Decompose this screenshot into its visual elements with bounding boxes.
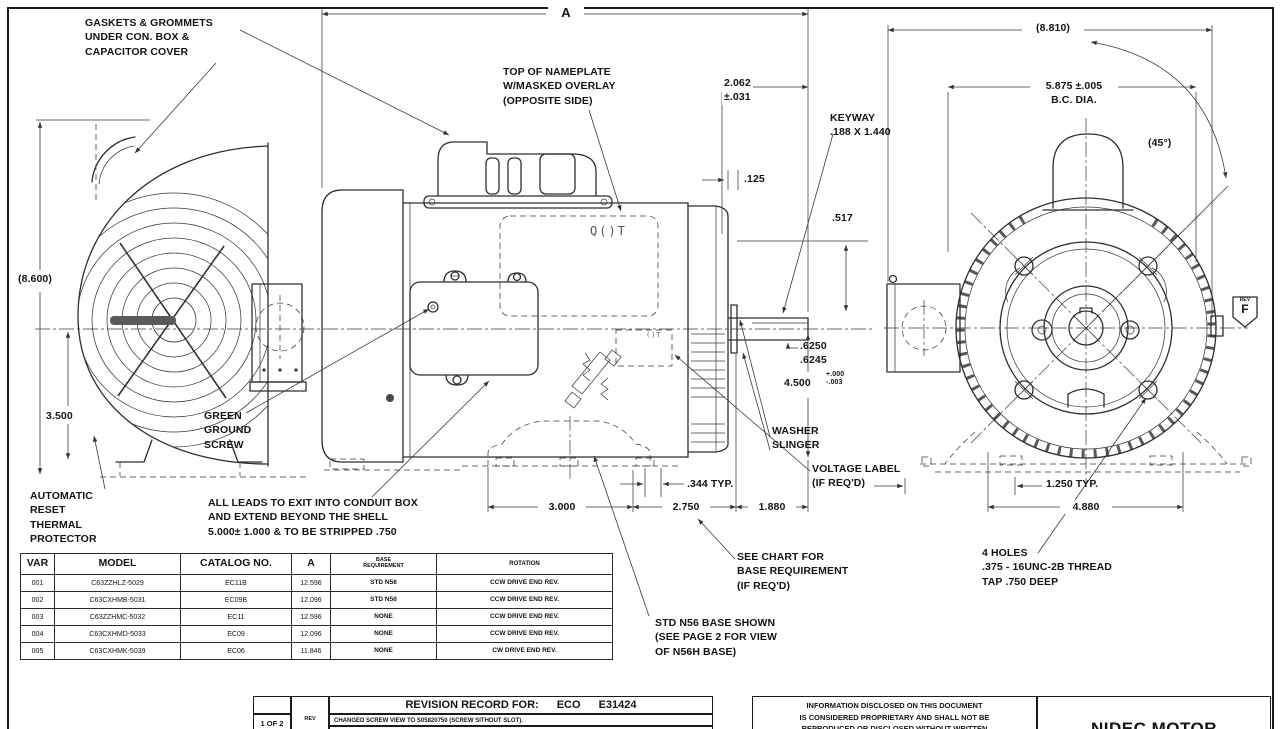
- cell: NONE: [331, 609, 437, 626]
- left-view-fan-end: [47, 124, 310, 477]
- dim-bolt-circle: 5.875 ±.005 B.C. DIA.: [1030, 79, 1118, 108]
- col-a: A: [292, 554, 331, 575]
- n56-base-outline: [324, 416, 680, 482]
- engineering-drawing-sheet: GASKETS & GROMMETS UNDER CON. BOX & CAPA…: [0, 0, 1280, 729]
- see-chart-note: SEE CHART FOR BASE REQUIREMENT (IF REQ'D…: [737, 550, 848, 593]
- dim-45deg: (45°): [1146, 136, 1173, 150]
- dim-517: .517: [832, 211, 853, 225]
- rev-flag-letter: F: [1233, 303, 1257, 315]
- thermal-protector-note: AUTOMATIC RESET THERMAL PROTECTOR: [30, 489, 97, 546]
- dim-4500: 4.500: [782, 376, 813, 390]
- dim-1880: 1.880: [748, 500, 796, 514]
- front-view-shaft-end: [887, 134, 1251, 472]
- col-model: MODEL: [55, 554, 181, 575]
- cert-mark-large: Q()T: [590, 225, 627, 237]
- cell: NONE: [331, 626, 437, 643]
- cell: 003: [21, 609, 55, 626]
- green-ground-screw-note: GREEN GROUND SCREW: [204, 409, 251, 452]
- side-view: [322, 142, 808, 482]
- dim-4880: 4.880: [1060, 500, 1112, 514]
- cell: CW DRIVE END REV.: [437, 643, 613, 660]
- std-base-note: STD N56 BASE SHOWN (SEE PAGE 2 FOR VIEW …: [655, 616, 777, 659]
- dim-125: .125: [742, 172, 767, 186]
- cell: 002: [21, 592, 55, 609]
- dim-shaft-dia: .6250 .6245: [800, 339, 827, 368]
- green-ground-screw-part: [428, 302, 438, 312]
- dim-4500-tol: +.000 -.003: [826, 371, 844, 387]
- voltage-label-outline: [616, 330, 672, 366]
- dim-2750: 2.750: [662, 500, 710, 514]
- eco-number: E31424: [599, 700, 637, 711]
- spec-table: VAR MODEL CATALOG NO. A BASE REQUIREMENT…: [20, 553, 613, 660]
- revision-record-title: REVISION RECORD FOR:: [405, 700, 538, 711]
- cell: C63CXHMB-5031: [55, 592, 181, 609]
- table-row: 003C63ZZHMC-5032EC1112.596NONECCW DRIVE …: [21, 609, 613, 626]
- dim-3500: 3.500: [44, 409, 75, 423]
- dim-8810: (8.810): [1022, 21, 1084, 35]
- company-cell: NIDEC MOTOR CORPORATION: [1037, 696, 1271, 729]
- cell: C63ZZHLZ-5029: [55, 575, 181, 592]
- cell: 12.096: [292, 592, 331, 609]
- cell: STD N56: [331, 575, 437, 592]
- revision-record-header: REVISION RECORD FOR: ECO E31424: [329, 696, 713, 714]
- table-row: 001C63ZZHLZ-5029EC11B12.596STD N56CCW DR…: [21, 575, 613, 592]
- gaskets-grommets-note: GASKETS & GROMMETS UNDER CON. BOX & CAPA…: [85, 16, 213, 59]
- dim-1250: 1.250 TYP.: [1046, 477, 1098, 491]
- capacitor-cover: [410, 282, 538, 375]
- spec-table-header-row: VAR MODEL CATALOG NO. A BASE REQUIREMENT…: [21, 554, 613, 575]
- washer-slinger-note: WASHER SLINGER: [772, 424, 819, 453]
- proprietary-notice: INFORMATION DISCLOSED ON THIS DOCUMENT I…: [752, 696, 1037, 729]
- cell: 001: [21, 575, 55, 592]
- rev-cell: REV F: [291, 696, 329, 729]
- eco-label: ECO: [557, 700, 581, 711]
- dim-344: .344 TYP.: [687, 477, 733, 491]
- sheet-number-value: 1 OF 2: [253, 714, 291, 729]
- cell: STD N56: [331, 592, 437, 609]
- company-name: NIDEC MOTOR: [1038, 720, 1270, 729]
- cell: EC06: [181, 643, 292, 660]
- dim-8600: (8.600): [16, 272, 54, 286]
- cell: 12.596: [292, 609, 331, 626]
- cell: EC11B: [181, 575, 292, 592]
- cell: CCW DRIVE END REV.: [437, 609, 613, 626]
- cell: NONE: [331, 643, 437, 660]
- cell: EC11: [181, 609, 292, 626]
- cell: 004: [21, 626, 55, 643]
- all-leads-note: ALL LEADS TO EXIT INTO CONDUIT BOX AND E…: [208, 496, 418, 539]
- cert-mark-small: ()T: [646, 332, 662, 339]
- dim-a: A: [548, 4, 584, 22]
- table-row: 005C63CXHMK-5039EC0611.846NONECW DRIVE E…: [21, 643, 613, 660]
- cell: C63CXHMK-5039: [55, 643, 181, 660]
- cell: EC09B: [181, 592, 292, 609]
- keyway-note: KEYWAY .188 X 1.440: [830, 111, 891, 140]
- rev-label: REV: [292, 715, 328, 722]
- cell: 12.096: [292, 626, 331, 643]
- cell: CCW DRIVE END REV.: [437, 575, 613, 592]
- cell: C63CXHMD-5033: [55, 626, 181, 643]
- cell: EC09: [181, 626, 292, 643]
- cell: C63ZZHMC-5032: [55, 609, 181, 626]
- cooling-fins: [691, 334, 725, 442]
- cell: 12.596: [292, 575, 331, 592]
- table-row: 002C63CXHMB-5031EC09B12.096STD N56CCW DR…: [21, 592, 613, 609]
- col-catalog: CATALOG NO.: [181, 554, 292, 575]
- top-cap: [1053, 134, 1123, 208]
- cell: CCW DRIVE END REV.: [437, 592, 613, 609]
- cell: 11.846: [292, 643, 331, 660]
- dim-3000: 3.000: [538, 500, 586, 514]
- table-row: 004C63CXHMD-5033EC0912.096NONECCW DRIVE …: [21, 626, 613, 643]
- top-of-nameplate-note: TOP OF NAMEPLATE W/MASKED OVERLAY (OPPOS…: [503, 65, 616, 108]
- voltage-label-note: VOLTAGE LABEL (IF REQ'D): [812, 462, 900, 491]
- nameplate-outline: [500, 216, 658, 316]
- front-feet-outline: [920, 432, 1251, 472]
- col-var: VAR: [21, 554, 55, 575]
- dim-2062: 2.062 ±.031: [722, 76, 753, 105]
- burst-symbol: [565, 350, 621, 408]
- col-base: BASE REQUIREMENT: [331, 554, 437, 575]
- sheet-number-cell: SHEET NUMBER: [253, 696, 291, 714]
- title-block: SHEET NUMBER 1 OF 2 REV F REVISION RECOR…: [253, 696, 1273, 729]
- conduit-box: [438, 142, 596, 196]
- revision-note: CHANGED SCREW VIEW TO S05820750 (SCREW S…: [329, 714, 713, 726]
- cell: CCW DRIVE END REV.: [437, 626, 613, 643]
- cell: 005: [21, 643, 55, 660]
- four-holes-note: 4 HOLES .375 - 16UNC-2B THREAD TAP .750 …: [982, 546, 1112, 589]
- col-rotation: ROTATION: [437, 554, 613, 575]
